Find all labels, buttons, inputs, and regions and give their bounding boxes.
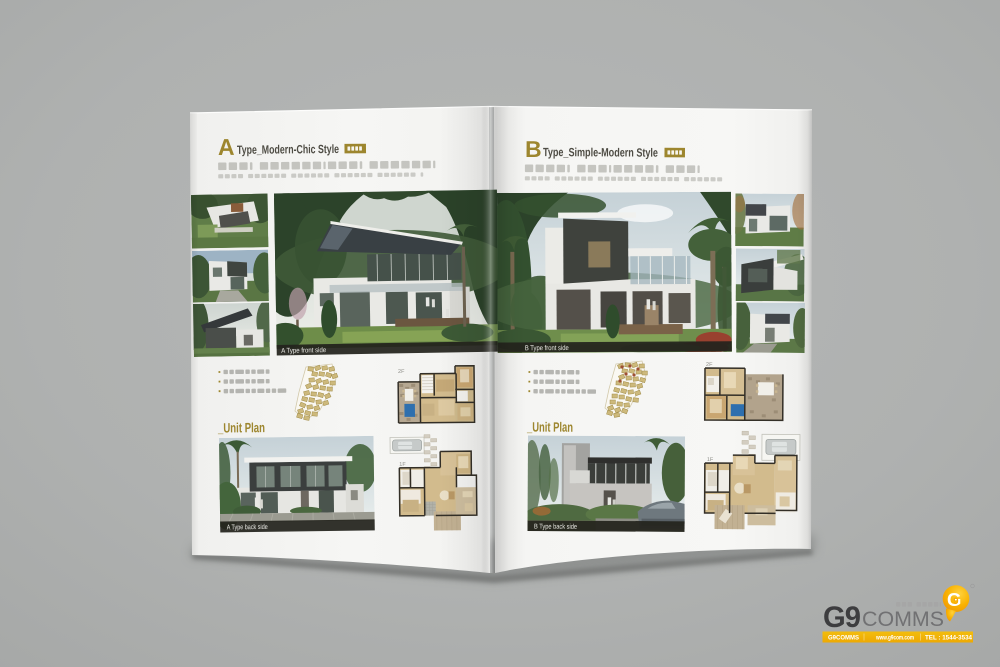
svg-text:G9COMMS: G9COMMS (828, 635, 859, 642)
svg-text:A Type back side: A Type back side (227, 524, 268, 532)
svg-text:B Type front side: B Type front side (525, 345, 569, 352)
svg-text:_Unit Plan: _Unit Plan (217, 420, 265, 435)
svg-text:1F: 1F (399, 462, 406, 468)
svg-text:Type_Simple-Modern Style: Type_Simple-Modern Style (543, 145, 658, 160)
svg-text:G9: G9 (823, 601, 860, 634)
svg-text:2F: 2F (706, 362, 713, 368)
svg-text:9: 9 (953, 596, 958, 607)
svg-text:www.g9com.com: www.g9com.com (875, 635, 914, 642)
svg-text:B Type back side: B Type back side (534, 524, 577, 531)
svg-text:B: B (525, 136, 542, 162)
svg-text:_Unit Plan: _Unit Plan (526, 419, 573, 434)
svg-text:A: A (218, 134, 235, 160)
svg-text:A Type front side: A Type front side (281, 347, 326, 355)
svg-text:TEL : 1544-3534: TEL : 1544-3534 (925, 635, 972, 642)
svg-text:Type_Modern-Chic Style: Type_Modern-Chic Style (237, 142, 339, 157)
svg-text:2F: 2F (398, 369, 405, 375)
svg-text:1F: 1F (707, 457, 714, 463)
svg-text:COMMS: COMMS (862, 607, 944, 631)
